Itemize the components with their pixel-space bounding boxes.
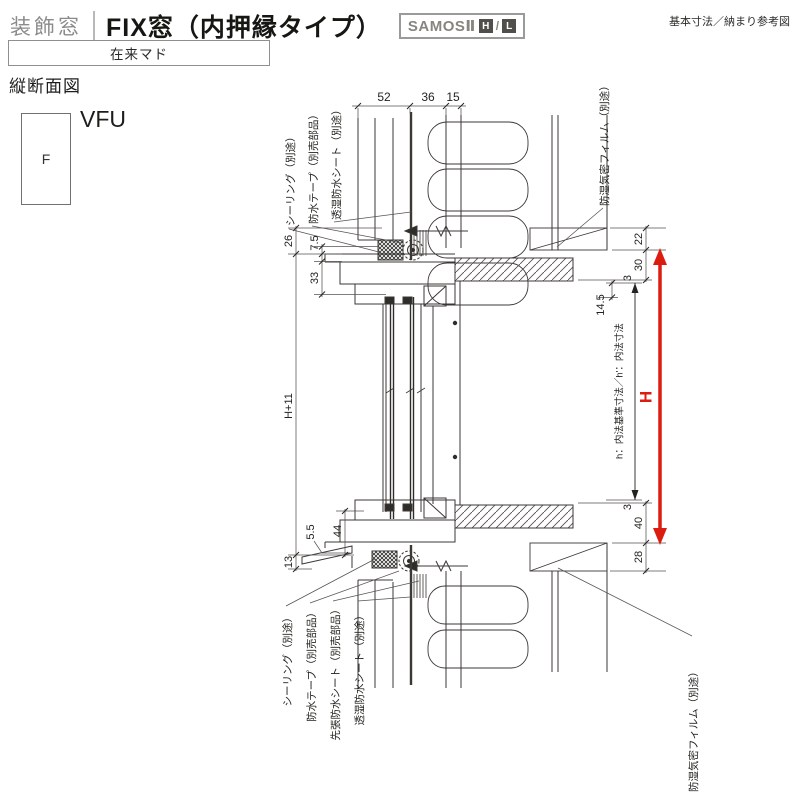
sill-lumber	[530, 543, 607, 571]
dim-14-5: 14.5	[595, 294, 607, 315]
insulation-batt-bottom	[428, 586, 528, 668]
glazing	[383, 281, 460, 519]
dim-3-bottom: 3	[622, 504, 634, 510]
sill-casing-board	[455, 505, 573, 528]
vertical-section-drawing: 52 36 15 26 7.5 33 H+11 5.5 44 13 22 30 …	[0, 0, 800, 800]
dim-15: 15	[446, 90, 460, 104]
dim-44: 44	[332, 525, 344, 537]
screw-symbol-top	[405, 226, 468, 236]
glass-break-marks	[386, 388, 425, 393]
glazing-gasket	[403, 504, 412, 511]
screw-symbol-bottom	[405, 561, 468, 571]
label-sealing-bottom: シーリング（別途）	[281, 612, 294, 707]
dim-5-5-leader	[314, 541, 350, 553]
glass-panes	[391, 297, 414, 519]
label-breathable-sheet-top: 透湿防水シート（別途）	[330, 105, 343, 221]
label-waterproof-tape-top: 防水テープ（別売部品）	[307, 109, 320, 224]
furring-comb-bottom	[414, 574, 426, 598]
dim-13: 13	[283, 556, 295, 568]
label-vapor-film-top: 防湿気密フィルム（別途）	[598, 80, 611, 206]
label-waterproof-tape-bottom: 防水テープ（別売部品）	[305, 607, 318, 722]
dim-3-top: 3	[622, 275, 634, 281]
label-sealing-top: シーリング（別途）	[284, 132, 297, 227]
sealing-block-bottom	[372, 551, 397, 568]
dim-52: 52	[377, 90, 391, 104]
press-bead-bottom	[424, 498, 446, 518]
dim-33: 33	[309, 272, 321, 284]
material-labels: シーリング（別途） 防水テープ（別売部品） 透湿防水シート（別途） 防湿気密フィ…	[281, 80, 700, 792]
dim-40: 40	[633, 517, 645, 529]
sealing-block-top	[378, 240, 403, 260]
dim-H: H	[636, 391, 655, 403]
press-bead-top	[424, 286, 446, 306]
dim-h-plus-11: H+11	[283, 393, 295, 419]
label-pre-applied-sheet-bottom: 先張防水シート（別売部品）	[329, 604, 342, 741]
label-vapor-film-bottom: 防湿気密フィルム（別途）	[687, 666, 700, 792]
catalog-page: 装飾窓 FIX窓（内押縁タイプ） SAMOSⅡ H / L 基本寸法／納まり参考…	[0, 0, 800, 800]
glazing-gasket	[385, 504, 394, 511]
dim-22: 22	[633, 233, 645, 245]
dim-36: 36	[421, 90, 435, 104]
dim-26: 26	[283, 235, 295, 247]
dim-28: 28	[633, 551, 645, 563]
dim-30: 30	[633, 259, 645, 271]
head-casing-board	[455, 258, 573, 281]
inner-dimension-note: h：内法基準寸法／h'：内法寸法	[614, 323, 626, 459]
head-frame	[325, 226, 573, 306]
dim-7-5: 7.5	[309, 235, 321, 250]
label-breathable-sheet-bottom: 透湿防水シート（別途）	[353, 610, 366, 726]
lintel-lumber	[530, 228, 607, 250]
dim-5-5: 5.5	[305, 524, 317, 539]
glazing-gasket	[385, 297, 394, 304]
